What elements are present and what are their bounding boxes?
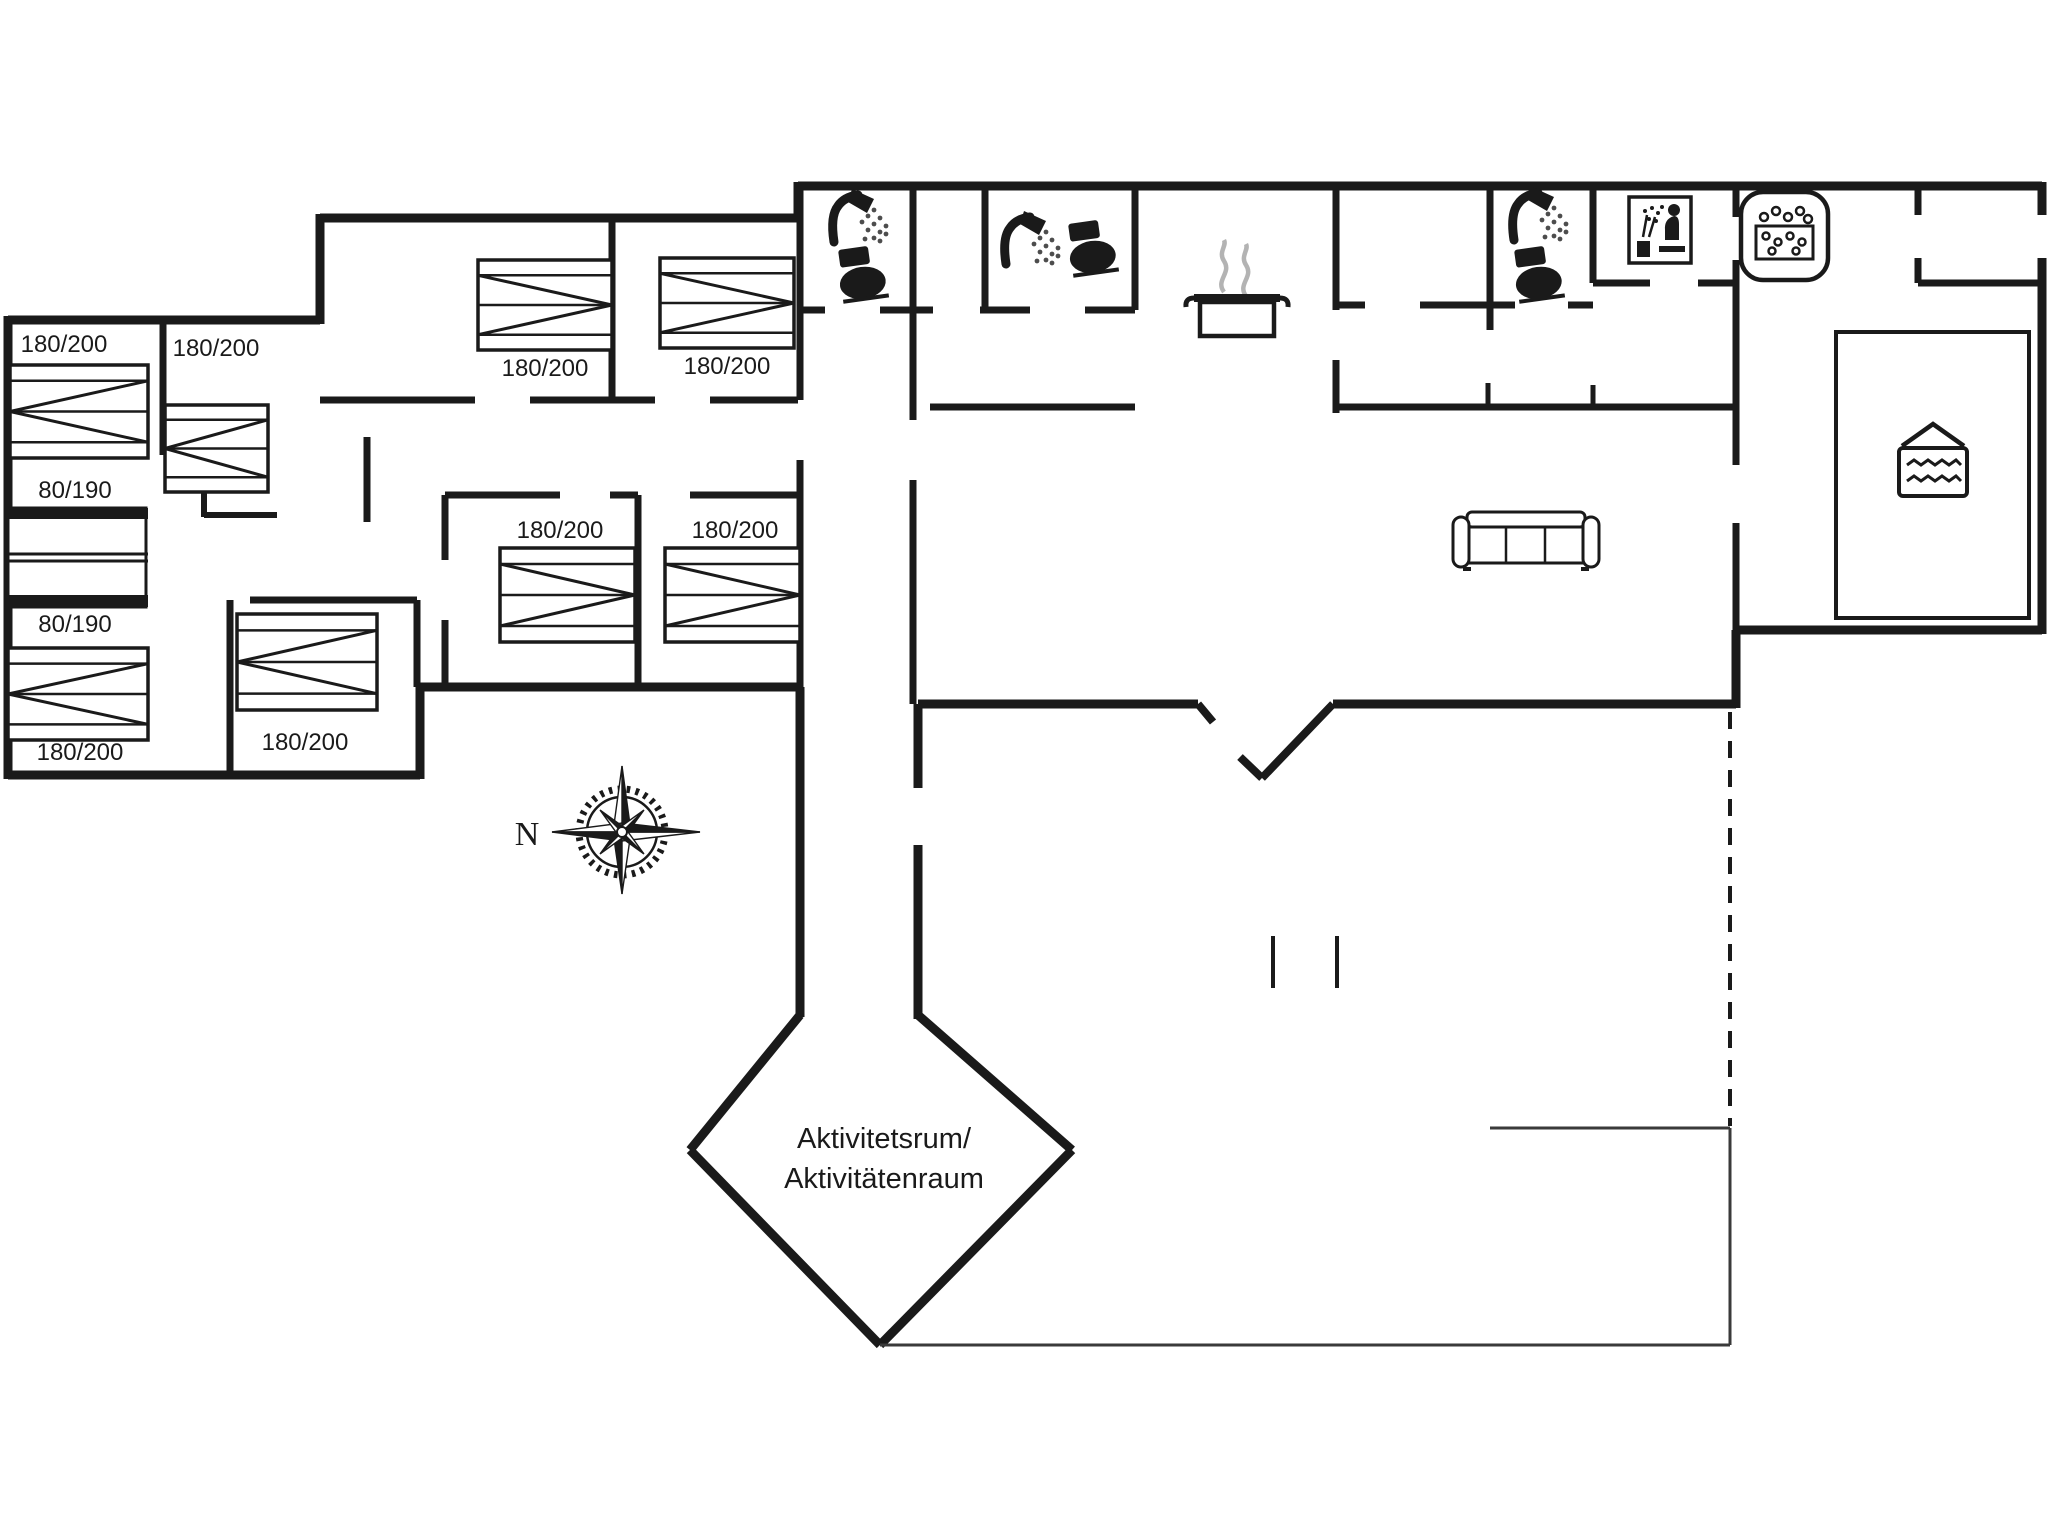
wall-segment (690, 1015, 800, 1150)
bed-symbol (8, 648, 148, 740)
floor-plan-drawing: 180/200180/20080/19080/190180/200180/200… (0, 0, 2048, 1536)
shower-icon (1005, 211, 1061, 265)
activity-room-label: Aktivitätenraum (784, 1163, 984, 1195)
bed-symbol (165, 405, 268, 492)
bed-size-label: 180/200 (173, 335, 260, 362)
bed-symbol (665, 548, 800, 642)
activity-room-label: Aktivitetsrum/ (797, 1123, 972, 1155)
bed-symbol (500, 548, 635, 642)
bed-size-label: 180/200 (684, 353, 771, 380)
bed-size-label: 180/200 (692, 517, 779, 544)
wall-segment (1262, 704, 1333, 778)
walls (8, 182, 2042, 1345)
bed-size-label: 180/200 (262, 729, 349, 756)
bed-size-label: 180/200 (21, 331, 108, 358)
wall-segment (1240, 757, 1262, 778)
terrace-outline (880, 712, 1730, 1345)
shower-icon (1513, 187, 1569, 241)
bunk-bed-symbol (6, 508, 148, 607)
bed-symbol (10, 365, 148, 458)
sauna-icon (1629, 197, 1691, 263)
toilet-icon (1511, 244, 1565, 302)
floor-plan: 180/200180/20080/19080/190180/200180/200… (0, 0, 2048, 1536)
bed-size-label: 80/190 (38, 611, 111, 638)
bed-size-label: 180/200 (37, 739, 124, 766)
bed-size-label: 180/200 (502, 355, 589, 382)
bed-symbol (478, 260, 612, 350)
toilet-icon (1065, 218, 1119, 276)
pool-icon (1899, 424, 1967, 496)
bed-symbol (237, 614, 377, 710)
sofa-icon (1453, 512, 1599, 569)
wall-segment (1198, 704, 1213, 722)
whirlpool-icon (1741, 192, 1828, 280)
compass-rose-icon (552, 766, 700, 894)
shower-icon (833, 189, 889, 243)
bed-size-label: 80/190 (38, 477, 111, 504)
bed-symbol (660, 258, 794, 348)
toilet-icon (835, 244, 889, 302)
compass-north-label: N (515, 816, 540, 853)
bed-size-label: 180/200 (517, 517, 604, 544)
cooking-pot-icon (1186, 240, 1288, 336)
